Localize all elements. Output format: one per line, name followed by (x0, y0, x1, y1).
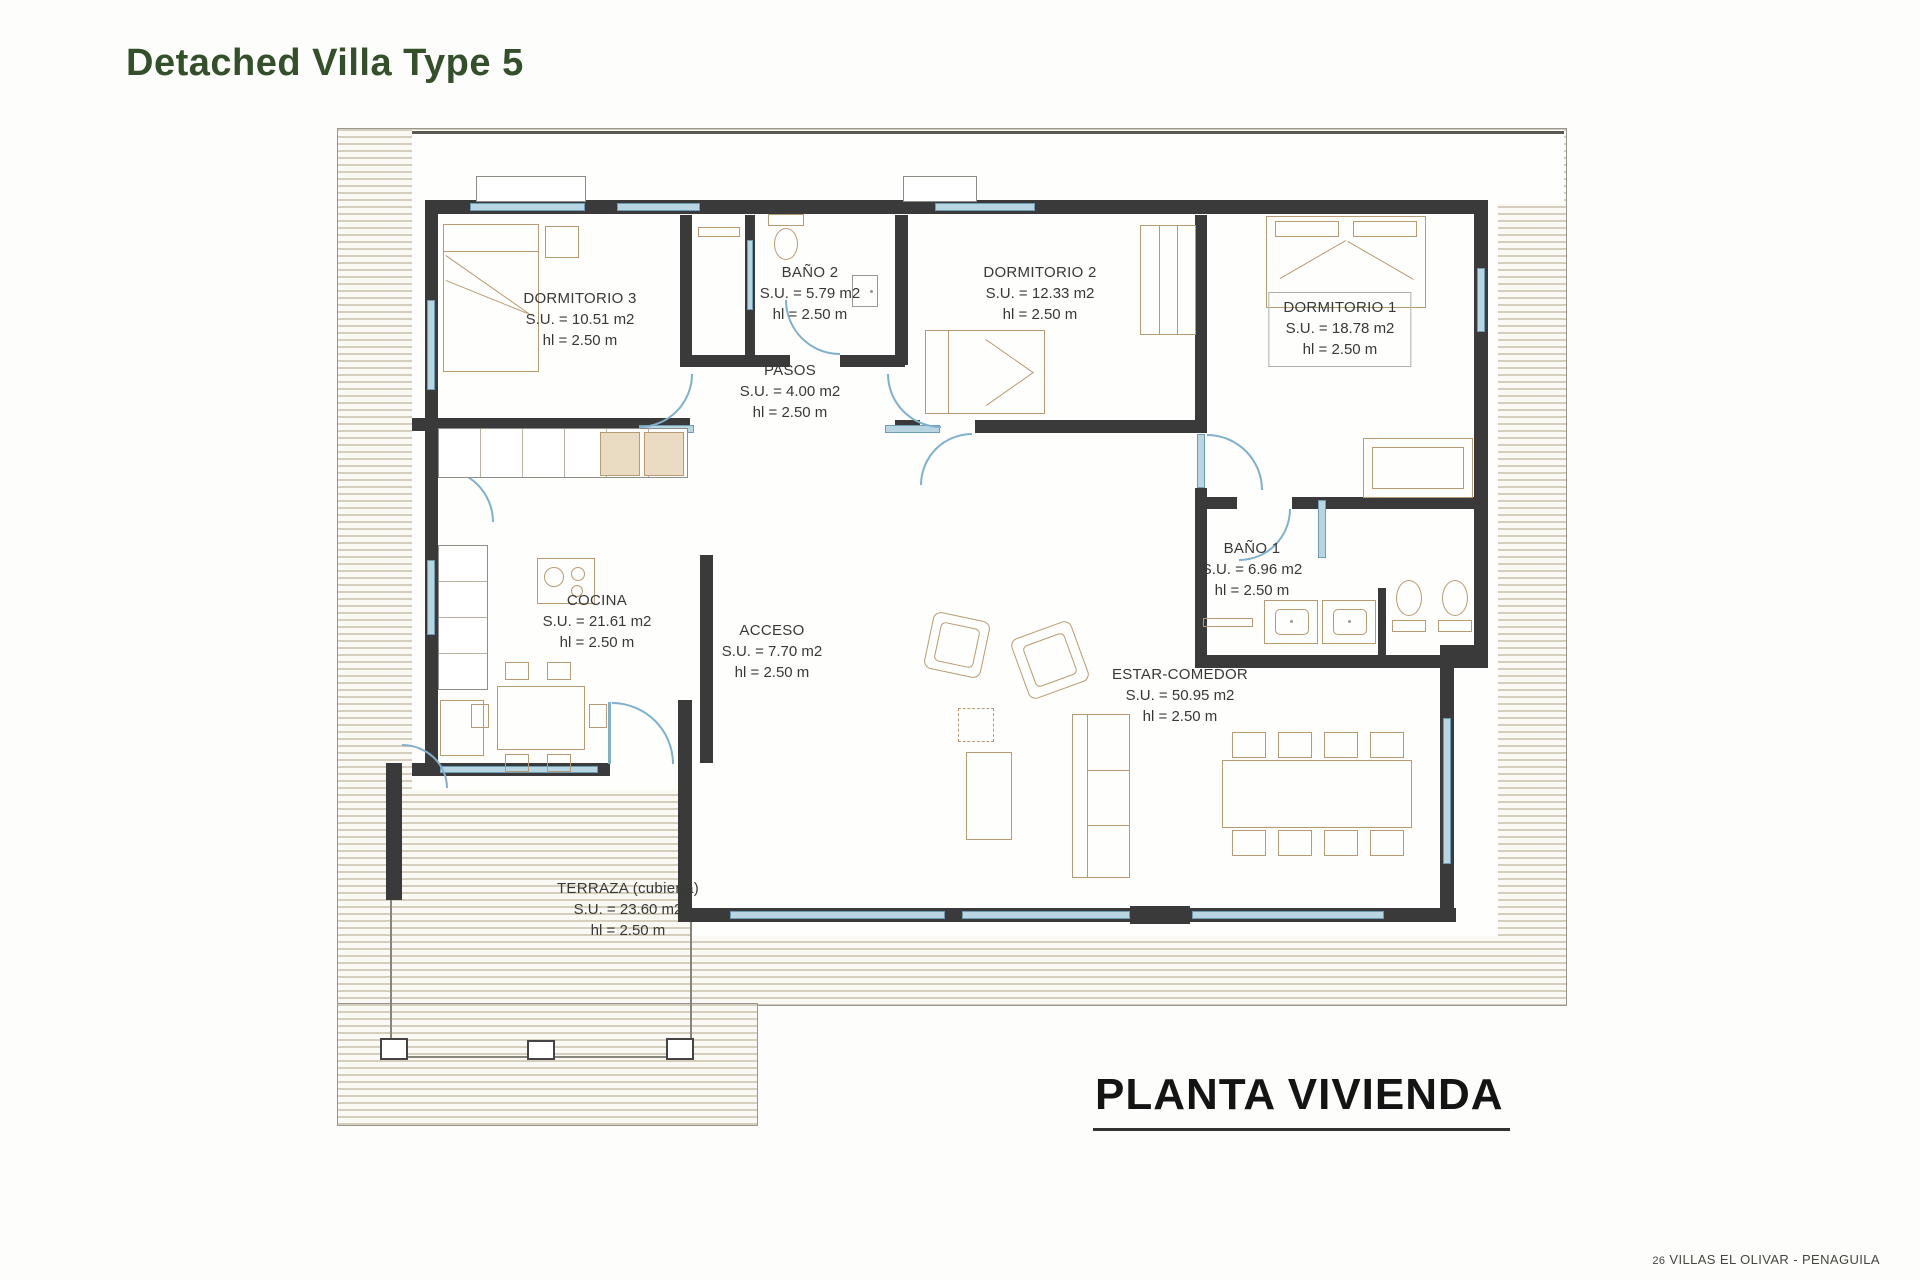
wall-dorm2-bottom (975, 420, 1207, 433)
wall-kitchen-access (700, 555, 713, 763)
room-name: COCINA (543, 590, 652, 611)
bed-pillow-line (444, 251, 538, 252)
room-area: S.U. = 10.51 m2 (523, 309, 636, 330)
plan-caption: PLANTA VIVIENDA (1093, 1070, 1510, 1131)
bidet-icon (1438, 580, 1474, 642)
roof-edge-line (412, 131, 1564, 134)
sofa-back-line (1087, 715, 1088, 877)
window (427, 560, 435, 635)
room-label-estar-comedor: ESTAR-COMEDOR S.U. = 50.95 m2 hl = 2.50 … (1112, 664, 1248, 727)
terrace-pillar (380, 1038, 408, 1060)
chair-icon (505, 754, 529, 772)
room-name: BAÑO 1 (1202, 538, 1302, 559)
footer-page-number: 26 (1652, 1255, 1665, 1267)
room-name: TERRAZA (cubierta) (557, 878, 699, 899)
sink-drain (1348, 620, 1351, 623)
toilet-bowl-icon (1396, 580, 1422, 616)
roof-hatch-left-extension (337, 1003, 758, 1126)
room-name: PASOS (740, 360, 840, 381)
room-height: hl = 2.50 m (740, 402, 840, 423)
wardrobe-icon (1140, 225, 1196, 335)
bed-fold-line (1280, 240, 1346, 279)
shelf-icon (1203, 618, 1253, 627)
chair-icon (1232, 830, 1266, 856)
bidet-bowl-icon (1442, 580, 1468, 616)
room-name: DORMITORIO 3 (523, 288, 636, 309)
closet-inner (1372, 447, 1464, 489)
window (935, 203, 1035, 211)
chair-icon (547, 662, 571, 680)
nightstand-icon (545, 226, 579, 258)
bed-fold-line (1348, 241, 1414, 280)
handle-dot (870, 290, 873, 293)
sofa-cushion-line (1087, 770, 1129, 771)
room-label-acceso: ACCESO S.U. = 7.70 m2 hl = 2.50 m (722, 620, 822, 683)
burner (571, 567, 585, 581)
pillow-icon (1275, 221, 1339, 237)
window (470, 203, 585, 211)
terrace-pillar (666, 1038, 694, 1060)
room-name: DORMITORIO 2 (983, 262, 1096, 283)
chair-icon (589, 704, 607, 728)
sofa-icon (1072, 714, 1130, 878)
window (1318, 500, 1326, 558)
chair-icon (1370, 732, 1404, 758)
chair-icon (1324, 732, 1358, 758)
room-area: S.U. = 7.70 m2 (722, 641, 822, 662)
bed-fold-line (986, 372, 1034, 406)
room-name: DORMITORIO 1 (1283, 297, 1396, 318)
chair-icon (1370, 830, 1404, 856)
room-height: hl = 2.50 m (983, 304, 1096, 325)
fridge-icon (440, 700, 484, 756)
sink-icon (1322, 600, 1376, 644)
window-sill (903, 176, 977, 202)
room-label-terraza: TERRAZA (cubierta) S.U. = 23.60 m2 hl = … (557, 878, 699, 941)
footer-project-name: VILLAS EL OLIVAR - PENAGUILA (1669, 1252, 1880, 1267)
chair-icon (1278, 830, 1312, 856)
chair-icon (547, 754, 571, 772)
room-name: ACCESO (722, 620, 822, 641)
closet-icon (1363, 438, 1473, 498)
shelf-icon (698, 227, 740, 237)
armchair-seat (933, 621, 980, 668)
entry-door-leaf (608, 702, 611, 764)
room-area: S.U. = 18.78 m2 (1283, 318, 1396, 339)
room-area: S.U. = 23.60 m2 (557, 899, 699, 920)
room-label-dormitorio-3: DORMITORIO 3 S.U. = 10.51 m2 hl = 2.50 m (523, 288, 636, 351)
window (1443, 718, 1451, 864)
room-height: hl = 2.50 m (1112, 706, 1248, 727)
toilet-bowl-icon (774, 228, 798, 260)
bed-fold-line (985, 339, 1033, 373)
dining-table-icon (1222, 760, 1412, 828)
chair-icon (505, 662, 529, 680)
bed-icon (925, 330, 1045, 414)
pillow-icon (1353, 221, 1417, 237)
wall-bath1-top (1207, 497, 1237, 509)
chair-icon (1232, 732, 1266, 758)
room-height: hl = 2.50 m (722, 662, 822, 683)
footer-credit: 26VILLAS EL OLIVAR - PENAGUILA (1652, 1252, 1880, 1267)
kitchen-counter (438, 545, 488, 690)
wardrobe-divider (1159, 226, 1160, 334)
room-name: BAÑO 2 (760, 262, 860, 283)
wall-dorm3-bath2 (680, 215, 692, 365)
wall-dorm1-left (1195, 215, 1207, 432)
wall-bath2-dorm2 (895, 215, 908, 365)
wall-bottom-pier (1130, 906, 1190, 924)
room-height: hl = 2.50 m (1283, 339, 1396, 360)
toilet-tank-icon (1392, 620, 1426, 632)
wall-toilet-divider (1378, 588, 1386, 655)
room-label-bano-2: BAÑO 2 S.U. = 5.79 m2 hl = 2.50 m (760, 262, 860, 325)
page-title: Detached Villa Type 5 (126, 42, 524, 85)
appliance-icon (600, 432, 640, 476)
room-height: hl = 2.50 m (1202, 580, 1302, 601)
window (747, 240, 753, 310)
room-height: hl = 2.50 m (543, 632, 652, 653)
room-height: hl = 2.50 m (523, 330, 636, 351)
window-sill (476, 176, 586, 202)
room-label-bano-1: BAÑO 1 S.U. = 6.96 m2 hl = 2.50 m (1202, 538, 1302, 601)
room-area: S.U. = 21.61 m2 (543, 611, 652, 632)
wall-left (425, 200, 438, 775)
room-label-cocina: COCINA S.U. = 21.61 m2 hl = 2.50 m (543, 590, 652, 653)
room-label-pasos: PASOS S.U. = 4.00 m2 hl = 2.50 m (740, 360, 840, 423)
window (730, 911, 945, 919)
door-threshold (1197, 434, 1205, 488)
chair-icon (1324, 830, 1358, 856)
sofa-cushion-line (1087, 825, 1129, 826)
sink-drain (1290, 620, 1293, 623)
armchair-seat (1022, 632, 1078, 688)
room-height: hl = 2.50 m (760, 304, 860, 325)
window (1477, 268, 1485, 332)
floor-plan-page: Detached Villa Type 5 (0, 0, 1920, 1280)
bed-pillow-line (948, 331, 949, 413)
burner (544, 567, 564, 587)
window (617, 203, 700, 211)
armchair-icon (923, 611, 992, 680)
terrace-pillar (527, 1040, 555, 1060)
tv-unit-icon (966, 752, 1012, 840)
plant-icon (958, 708, 994, 742)
room-name: ESTAR-COMEDOR (1112, 664, 1248, 685)
wardrobe-divider (1177, 226, 1178, 334)
window (1192, 911, 1384, 919)
appliance-icon (644, 432, 684, 476)
kitchen-table-icon (497, 686, 585, 750)
bidet-base-icon (1438, 620, 1472, 632)
chair-icon (1278, 732, 1312, 758)
room-area: S.U. = 50.95 m2 (1112, 685, 1248, 706)
window (962, 911, 1130, 919)
room-area: S.U. = 5.79 m2 (760, 283, 860, 304)
room-area: S.U. = 6.96 m2 (1202, 559, 1302, 580)
room-label-dormitorio-2: DORMITORIO 2 S.U. = 12.33 m2 hl = 2.50 m (983, 262, 1096, 325)
toilet-icon (1392, 580, 1428, 642)
toilet-tank-icon (768, 214, 804, 226)
window (427, 300, 435, 390)
wall-bath2-bottom (840, 355, 905, 367)
room-area: S.U. = 4.00 m2 (740, 381, 840, 402)
wall-terrace-stub (386, 763, 402, 900)
sink-icon (1264, 600, 1318, 644)
room-label-dormitorio-1: DORMITORIO 1 S.U. = 18.78 m2 hl = 2.50 m (1268, 292, 1411, 367)
room-height: hl = 2.50 m (557, 920, 699, 941)
room-area: S.U. = 12.33 m2 (983, 283, 1096, 304)
